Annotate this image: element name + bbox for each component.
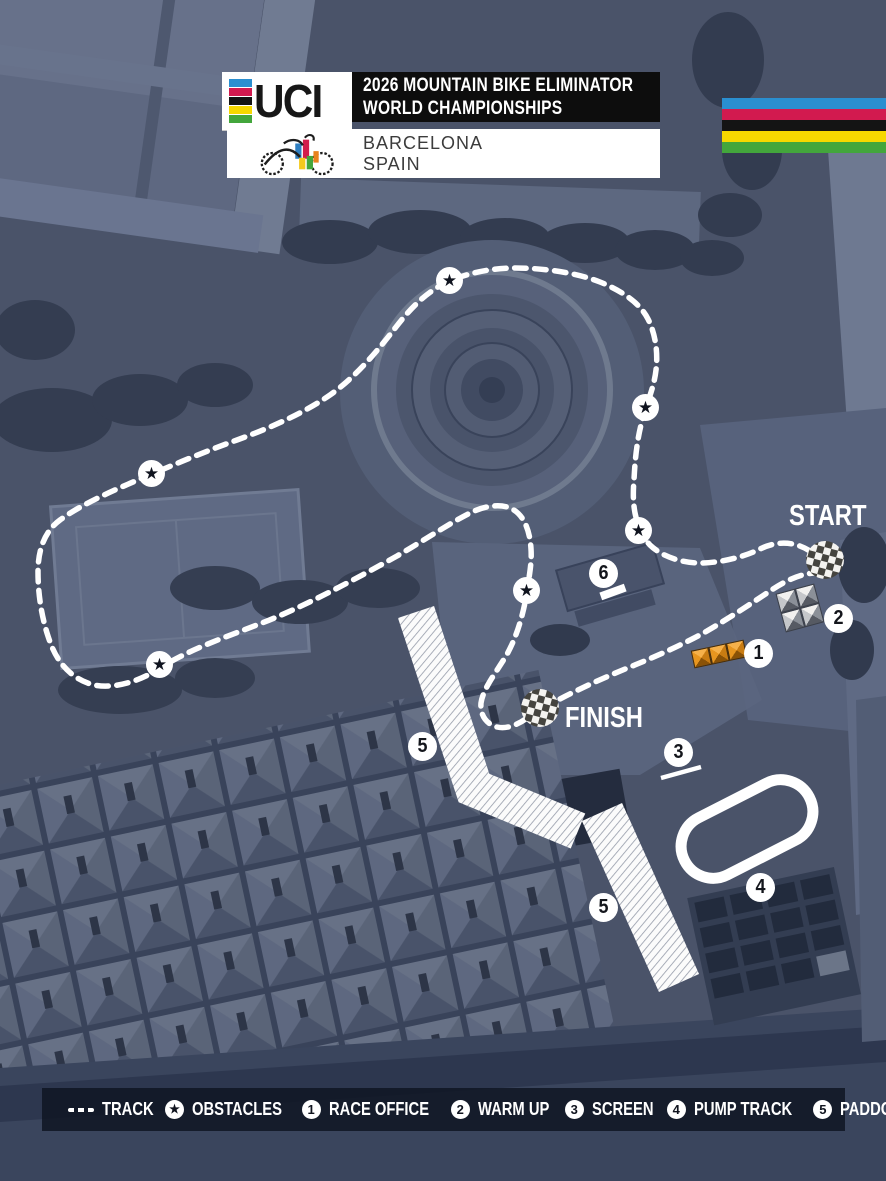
obstacle-star-icon: ★ [146,651,173,678]
legend-label: WARM UP [478,1099,549,1120]
badge-pump-track: 4 [746,873,775,902]
event-title-line2: WORLD CHAMPIONSHIPS [363,97,562,120]
rainbow-flag [722,98,886,153]
legend-label: RACE OFFICE [329,1099,429,1120]
obstacle-star-icon: ★ [436,267,463,294]
number-4-icon: 4 [667,1100,686,1119]
number-1-icon: 1 [302,1100,321,1119]
star-icon: ★ [144,465,159,482]
event-title-line1: 2026 MOUNTAIN BIKE ELIMINATOR [363,74,633,97]
badge-screen: 3 [664,738,693,767]
obstacle-star-icon: ★ [513,577,540,604]
badge-race-office: 1 [744,639,773,668]
legend-label: PADDOCK [840,1099,886,1120]
legend-item-screen: 3 SCREEN [565,1099,667,1120]
uci-cycling-pictogram [253,132,349,176]
obstacle-star-icon: ★ [625,517,652,544]
start-label: START [789,500,884,533]
number-5-icon: 5 [813,1100,832,1119]
badge-paddock-2: 5 [589,893,618,922]
badge-warm-up: 2 [824,604,853,633]
obstacle-star-icon: ★ [632,394,659,421]
legend-label: PUMP TRACK [694,1099,792,1120]
number-3-icon: 3 [565,1100,584,1119]
legend-bar: TRACK ★ OBSTACLES 1 RACE OFFICE 2 WARM U… [42,1088,845,1131]
star-icon: ★ [152,656,167,673]
star-icon: ★ [519,582,534,599]
star-icon: ★ [638,399,653,416]
event-title: 2026 MOUNTAIN BIKE ELIMINATOR WORLD CHAM… [352,72,660,122]
host-country: SPAIN [363,154,483,174]
legend-label: SCREEN [592,1099,654,1120]
start-checker [806,541,844,579]
legend-item-warm-up: 2 WARM UP [451,1099,565,1120]
legend-item-track: TRACK [68,1099,165,1120]
star-icon: ★ [631,522,646,539]
uci-logo: UCI [222,72,352,131]
legend-item-paddock: 5 PADDOCK [813,1099,886,1120]
badge-podium: 6 [589,559,618,588]
legend-label: OBSTACLES [192,1099,282,1120]
star-icon: ★ [165,1100,184,1119]
host-city: BARCELONA [363,133,483,154]
uci-wordmark: UCI [254,74,321,128]
badge-paddock-1: 5 [408,732,437,761]
star-icon: ★ [442,272,457,289]
uci-rainbow-icon [229,79,252,123]
legend-item-obstacles: ★ OBSTACLES [165,1099,302,1120]
rainbow-divider [352,122,660,128]
host-city-banner: BARCELONA SPAIN [227,129,660,178]
dashed-line-icon [68,1108,94,1112]
finish-label: FINISH [565,702,660,735]
legend-item-pump-track: 4 PUMP TRACK [667,1099,814,1120]
legend-label: TRACK [102,1099,154,1120]
number-2-icon: 2 [451,1100,470,1119]
course-map-poster: ★ ★ ★ ★ ★ ★ 1 2 3 4 5 5 6 START FINISH U… [0,0,886,1181]
obstacle-star-icon: ★ [138,460,165,487]
legend-item-race-office: 1 RACE OFFICE [302,1099,451,1120]
finish-checker [521,689,559,727]
